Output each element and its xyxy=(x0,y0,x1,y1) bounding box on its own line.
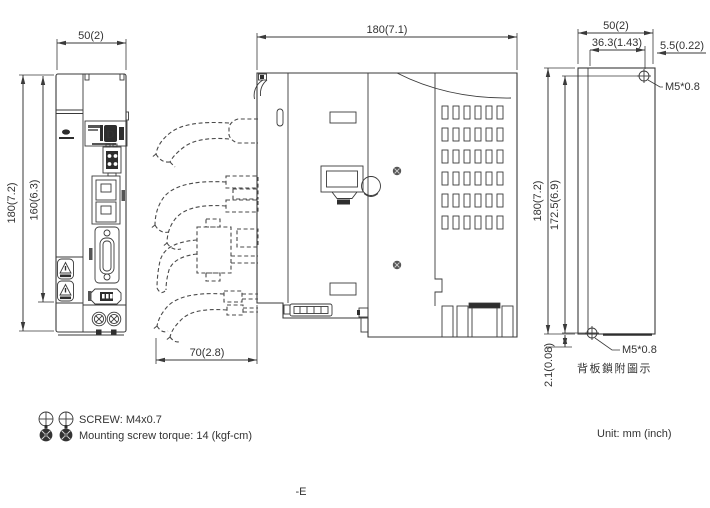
screw-cross-icon xyxy=(59,412,73,429)
edge-offset-dim: 5.5(0.22) xyxy=(660,40,704,52)
svg-text:D: D xyxy=(107,129,115,141)
screw-spec-note: SCREW: M4x0.7 xyxy=(79,414,162,426)
back-width-dim: 50(2) xyxy=(603,20,629,32)
rj45-port-icon xyxy=(96,180,116,200)
screw-head-icon xyxy=(40,429,53,442)
back-height-dim: 180(7.2) xyxy=(532,181,544,222)
torque-note: Mounting screw torque: 14 (kgf-cm) xyxy=(79,430,252,442)
back-view-caption: 背板鎖附圖示 xyxy=(577,361,652,375)
port-label-mark xyxy=(122,190,126,201)
top-clip xyxy=(85,74,89,80)
top-clip xyxy=(120,74,124,80)
bottom-offset-dim: 2.1(0.08) xyxy=(543,343,555,387)
mounting-hook xyxy=(254,74,267,99)
side-outline xyxy=(257,73,517,337)
back-view: M5*0.8 M5*0.8 50(2) 36.3(1.43) 5.5(0.22)… xyxy=(532,20,706,387)
side-view: 180(7.1) 70(2.8) xyxy=(150,24,517,364)
connector-label-mark xyxy=(88,291,92,301)
warning-labels xyxy=(58,259,74,301)
latch-knob xyxy=(362,177,381,196)
front-height-dim: 180(7.2) xyxy=(6,183,18,224)
encoder-connector xyxy=(88,289,121,304)
rj45-port-icon xyxy=(96,202,116,222)
back-plate-outline xyxy=(578,68,655,334)
bottom-feet xyxy=(442,303,513,337)
dimension-drawing: D xyxy=(0,0,710,508)
back-dimensions: 50(2) 36.3(1.43) 5.5(0.22) 180(7.2) 172.… xyxy=(532,20,706,387)
cable-clearance-dim: 70(2.8) xyxy=(190,347,225,359)
mounting-holes xyxy=(585,69,651,340)
side-connector xyxy=(321,166,363,205)
cable-bundles xyxy=(150,119,258,342)
front-width-dim: 50(2) xyxy=(78,30,104,42)
underside-connector xyxy=(284,304,332,316)
hole-offset-dim: 36.3(1.43) xyxy=(592,37,642,49)
front-view: D xyxy=(6,30,129,335)
legend: SCREW: M4x0.7 Mounting screw torque: 14 … xyxy=(39,412,252,442)
screw-head-icon xyxy=(60,429,73,442)
unit-note: Unit: mm (inch) xyxy=(597,428,672,440)
side-dimensions: 180(7.1) 70(2.8) xyxy=(156,24,517,364)
connector-label-mark xyxy=(89,248,93,260)
screw-bottom-label: M5*0.8 xyxy=(622,344,657,356)
side-panel-screws xyxy=(393,167,401,269)
front-inner-height-dim: 160(6.3) xyxy=(29,180,41,221)
power-connector xyxy=(103,144,121,176)
brand-logo: D xyxy=(85,121,127,146)
rj45-ports xyxy=(92,176,125,224)
vent-slots xyxy=(442,106,503,229)
model-suffix-label: -E xyxy=(296,486,307,498)
dimension-drawing-page: D xyxy=(0,0,710,508)
screw-cross-icon xyxy=(39,412,53,429)
front-bottom-screws xyxy=(92,312,121,334)
io-connector xyxy=(89,227,119,283)
hole-span-dim: 172.5(6.9) xyxy=(549,180,561,230)
cover-curve xyxy=(397,73,511,98)
screw-top-label: M5*0.8 xyxy=(665,81,700,93)
side-depth-dim: 180(7.1) xyxy=(367,24,408,36)
led-indicator xyxy=(62,129,70,134)
